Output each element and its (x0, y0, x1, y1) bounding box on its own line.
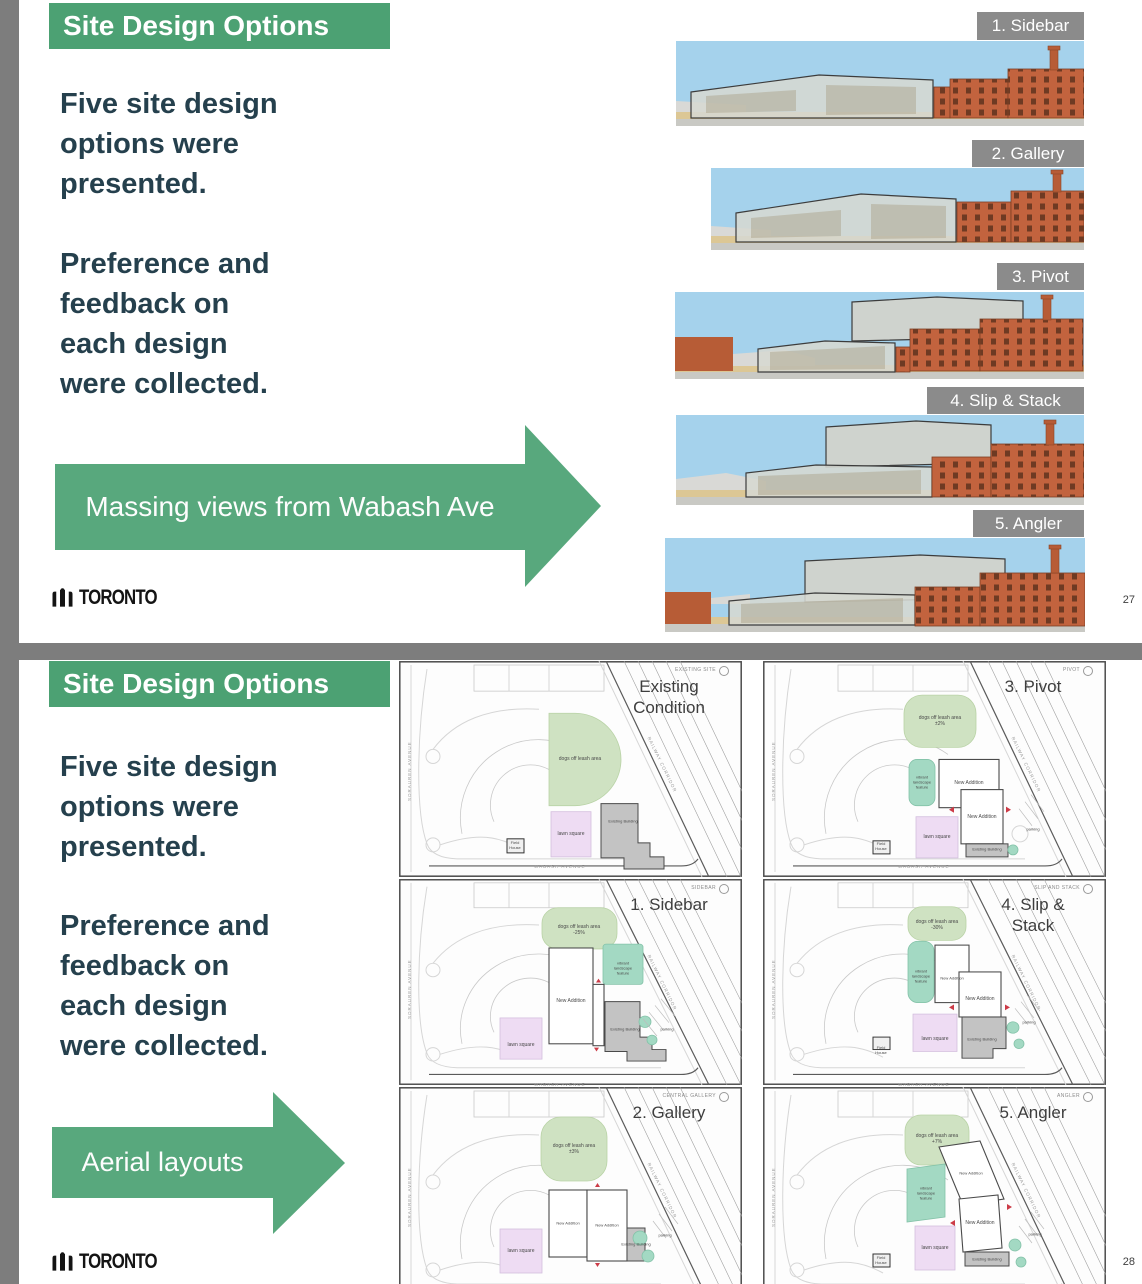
parking-label: parking (1022, 1020, 1035, 1025)
landscape-feature-label: vibrant landscape feature (614, 961, 632, 976)
lawn-square-label: lawn square (922, 1036, 949, 1042)
new-addition-shape (959, 972, 1001, 1017)
new-addition-label: New Addition (959, 1171, 982, 1176)
street-label-left: SORAUREN AVENUE (407, 1167, 412, 1227)
street-label-left: SORAUREN AVENUE (407, 959, 412, 1019)
massing-render-angler (665, 538, 1085, 632)
panel-title: 3. Pivot (968, 676, 1098, 697)
parking-label: parking (1028, 1232, 1041, 1237)
aerial-arrow-head-icon (273, 1092, 345, 1234)
lawn-square-label: lawn square (508, 1248, 535, 1254)
lawn-square-label: lawn square (924, 834, 951, 840)
street-label-left: SORAUREN AVENUE (771, 959, 776, 1019)
panel-tag: CENTRAL GALLERY (662, 1093, 716, 1099)
toronto-logo: TORONTO (50, 1251, 176, 1272)
massing-label-slipstack: 4. Slip & Stack (927, 387, 1084, 414)
brick-building (910, 329, 980, 371)
landscape-feature-label: vibrant landscape feature (912, 969, 930, 984)
toronto-logo: TORONTO (50, 587, 176, 608)
lawn-square-shape (500, 1018, 542, 1059)
new-addition-shape (549, 948, 593, 1044)
north-arrow-icon (1083, 884, 1093, 894)
landscape-feature-label: vibrant landscape feature (913, 775, 931, 790)
panel-title: 5. Angler (968, 1102, 1098, 1123)
massing-label-pivot: 3. Pivot (997, 263, 1084, 290)
new-addition-label: New Addition (954, 780, 983, 786)
brick-building (950, 79, 1008, 118)
plan-sidebar: 1. Sidebar SIDEBAR dogs off leash area -… (399, 879, 742, 1085)
lawn-square-label: lawn square (922, 1245, 949, 1251)
toronto-wordmark: TORONTO (79, 587, 157, 608)
massing-render-pivot (675, 292, 1084, 379)
panel-title: 1. Sidebar (604, 894, 734, 915)
toronto-cityhall-icon (50, 1251, 75, 1272)
street-label-bottom: WABASH AVENUE (534, 864, 586, 869)
new-addition-label: New Addition (967, 814, 996, 820)
existing-building-label: Existing Building (621, 1242, 650, 1247)
dogs-area-label: dogs off leash area -25% (558, 924, 600, 937)
plan-angler: 5. Angler ANGLER dogs off leash area +7%… (763, 1087, 1106, 1284)
body-paragraph-1: Five site design options were presented. (60, 747, 278, 867)
chimney (1046, 422, 1054, 445)
new-addition-label: New Addition (965, 996, 994, 1002)
slide-title: Site Design Options (49, 661, 390, 707)
body-paragraph-2: Preference and feedback on each design w… (60, 244, 270, 404)
plan-existing-condition: Existing Condition EXISTING SITE dogs of… (399, 661, 742, 877)
aerial-arrow-label: Aerial layouts (81, 1147, 243, 1178)
north-arrow-icon (719, 884, 729, 894)
slide-28: Site Design Options Five site design opt… (19, 660, 1142, 1284)
massing-render-gallery (711, 168, 1084, 250)
north-arrow-icon (719, 666, 729, 676)
panel-tag: ANGLER (1057, 1093, 1080, 1099)
chimney (1050, 48, 1058, 70)
existing-building-label: Existing Building (972, 847, 1001, 852)
lawn-square-label: lawn square (508, 1042, 535, 1048)
new-addition-label: New Addition (595, 1223, 618, 1228)
field-house-label: Field House (509, 840, 521, 850)
existing-building-label: Existing Building (967, 1037, 996, 1042)
toronto-wordmark: TORONTO (79, 1251, 157, 1272)
parking-label: parking (1026, 827, 1039, 832)
panel-tag: SLIP AND STACK (1034, 885, 1080, 891)
page-number: 28 (1123, 1256, 1135, 1268)
new-addition-label: New Addition (556, 1221, 579, 1226)
plan-gallery: 2. Gallery CENTRAL GALLERY dogs off leas… (399, 1087, 742, 1284)
brick-building (915, 587, 980, 626)
slide-title: Site Design Options (49, 3, 390, 49)
brick-building (957, 202, 1011, 242)
field-house-label: Field House (875, 1045, 887, 1055)
existing-building-label: Existing Building (610, 1027, 639, 1032)
street-label-left: SORAUREN AVENUE (771, 1167, 776, 1227)
massing-arrow-head-icon (525, 425, 601, 587)
massing-label-angler: 5. Angler (973, 510, 1084, 537)
panel-tag: EXISTING SITE (675, 667, 716, 673)
massing-arrow: Massing views from Wabash Ave (55, 464, 525, 550)
massing-label-gallery: 2. Gallery (972, 140, 1084, 167)
chimney (1053, 172, 1061, 192)
parking-label: parking (660, 1027, 673, 1032)
aerial-arrow: Aerial layouts (52, 1127, 273, 1198)
panel-tag: PIVOT (1063, 667, 1080, 673)
page-number: 27 (1123, 594, 1135, 606)
adjacent-building (665, 592, 711, 624)
new-addition-label: New Addition (965, 1220, 994, 1226)
adjacent-building (675, 337, 733, 371)
existing-building-label: Existing Building (972, 1257, 1001, 1262)
plan-pivot: 3. Pivot PIVOT dogs off leash area ±2% v… (763, 661, 1106, 877)
field-house-label: Field House (875, 1255, 887, 1265)
panel-title: 4. Slip & Stack (968, 894, 1098, 936)
existing-building-label: Existing Building (608, 819, 637, 824)
body-paragraph-1: Five site design options were presented. (60, 84, 278, 204)
massing-render-slipstack (676, 415, 1084, 505)
plan-slip-stack: 4. Slip & Stack SLIP AND STACK dogs off … (763, 879, 1106, 1085)
parking-label: parking (658, 1233, 671, 1238)
page: Site Design Options Five site design opt… (0, 0, 1142, 1284)
lawn-square-label: lawn square (558, 831, 585, 837)
dogs-area-label: dogs off leash area ±3% (553, 1143, 595, 1156)
dogs-area-label: dogs off leash area (559, 756, 601, 762)
chimney (1043, 297, 1051, 320)
panel-title: Existing Condition (604, 676, 734, 718)
street-label-left: SORAUREN AVENUE (407, 741, 412, 801)
landscape-feature-label: vibrant landscape feature (917, 1186, 935, 1201)
field-house-label: Field House (875, 841, 887, 851)
brick-building (932, 457, 991, 497)
slide-27: Site Design Options Five site design opt… (19, 0, 1142, 643)
north-arrow-icon (719, 1092, 729, 1102)
toronto-cityhall-icon (50, 587, 75, 608)
panel-title: 2. Gallery (604, 1102, 734, 1123)
dogs-area-label: dogs off leash area +7% (916, 1133, 958, 1146)
panel-tag: SIDEBAR (691, 885, 716, 891)
street-label-bottom: WABASH AVENUE (898, 864, 950, 869)
dogs-area-label: dogs off leash area -30% (916, 919, 958, 932)
body-paragraph-2: Preference and feedback on each design w… (60, 906, 270, 1066)
massing-arrow-label: Massing views from Wabash Ave (85, 491, 494, 523)
massing-label-sidebar: 1. Sidebar (977, 12, 1084, 40)
lawn-square-shape (913, 1014, 957, 1051)
new-addition-label: New Addition (556, 998, 585, 1004)
new-addition-label: New Addition (940, 976, 963, 981)
chimney (1051, 547, 1059, 573)
street-label-left: SORAUREN AVENUE (771, 741, 776, 801)
dogs-area-label: dogs off leash area ±2% (919, 715, 961, 728)
north-arrow-icon (1083, 666, 1093, 676)
north-arrow-icon (1083, 1092, 1093, 1102)
massing-render-sidebar (676, 41, 1084, 126)
